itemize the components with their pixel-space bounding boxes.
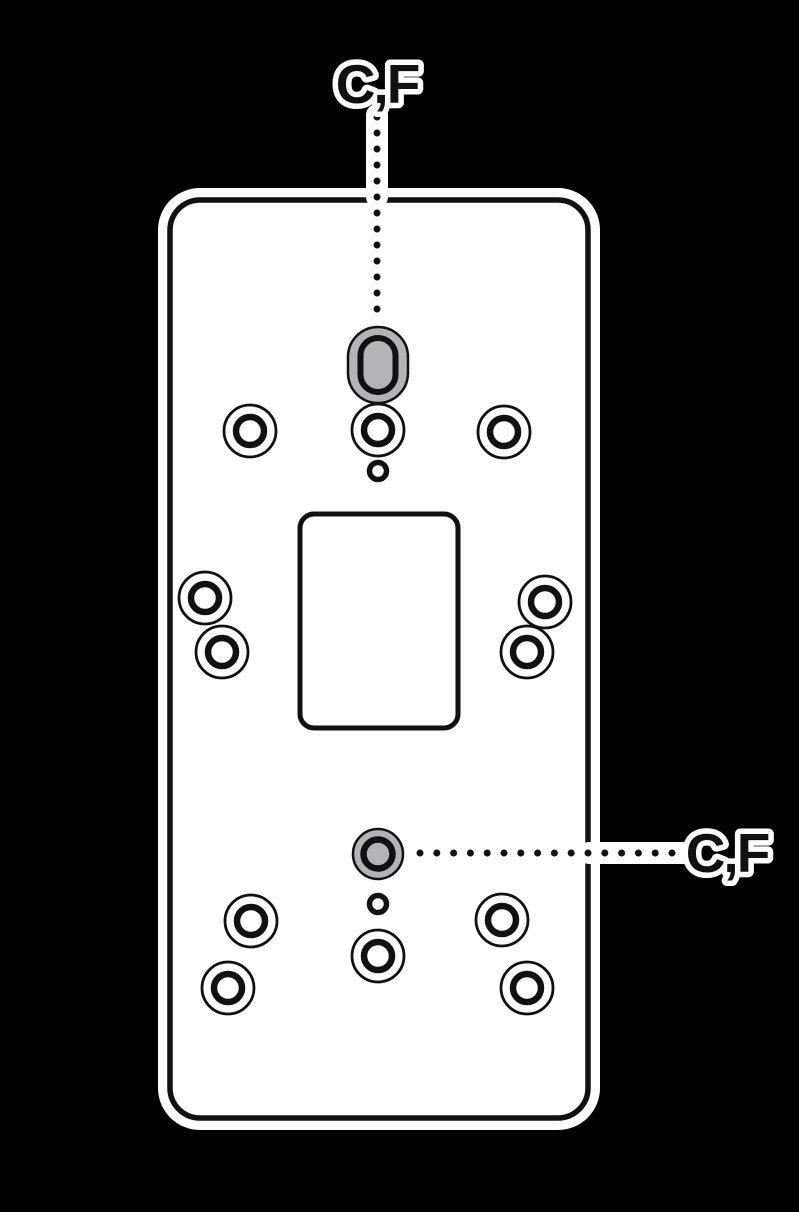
leader-dot (551, 850, 558, 857)
leader-dot (374, 226, 381, 233)
leader-dot (374, 210, 381, 217)
highlighted-slot (348, 327, 408, 403)
top-pilot-hole (370, 463, 387, 480)
bottom-right-outer-screw-hole (501, 962, 553, 1014)
leader-dot (618, 850, 625, 857)
mounting-plate-diagram: C,F C,F (0, 0, 799, 1212)
leader-dot (374, 178, 381, 185)
leader-dot (501, 850, 508, 857)
leader-dot (484, 850, 491, 857)
leader-dot (374, 306, 381, 313)
leader-dot (374, 130, 381, 137)
mid-left-inner-screw-hole (196, 626, 248, 678)
mid-right-inner-screw-hole (501, 626, 553, 678)
bottom-left-inner-screw-hole (225, 895, 277, 947)
leader-dot (601, 850, 608, 857)
leader-dot (417, 850, 424, 857)
top-left-screw-hole (224, 405, 276, 457)
leader-dot (374, 242, 381, 249)
top-right-screw-hole (478, 406, 530, 458)
leader-dot (517, 850, 524, 857)
bottom-pilot-hole (370, 896, 387, 913)
leader-dot (374, 162, 381, 169)
leader-dot (467, 850, 474, 857)
leader-dot (374, 274, 381, 281)
bottom-right-inner-screw-hole (476, 894, 528, 946)
leader-dot (568, 850, 575, 857)
central-cutout (300, 514, 458, 728)
leader-dot (585, 850, 592, 857)
leader-dot (669, 850, 676, 857)
bottom-center-screw-hole (352, 930, 404, 982)
top-center-screw-hole (352, 404, 404, 456)
leader-dot (534, 850, 541, 857)
callout-label-bottom: C,F (686, 822, 769, 884)
leader-dot (374, 146, 381, 153)
leader-dot (374, 290, 381, 297)
leader-dot (374, 258, 381, 265)
highlighted-screw-hole (353, 829, 403, 879)
mid-right-outer-screw-hole (519, 576, 571, 628)
leader-dot (652, 850, 659, 857)
diagram-canvas: C,F C,F (0, 0, 799, 1212)
leader-dot (433, 850, 440, 857)
bottom-left-outer-screw-hole (202, 962, 254, 1014)
mid-left-outer-screw-hole (179, 572, 231, 624)
leader-dot (374, 194, 381, 201)
leader-dot (450, 850, 457, 857)
callout-label-top: C,F (336, 53, 419, 115)
leader-dot (635, 850, 642, 857)
